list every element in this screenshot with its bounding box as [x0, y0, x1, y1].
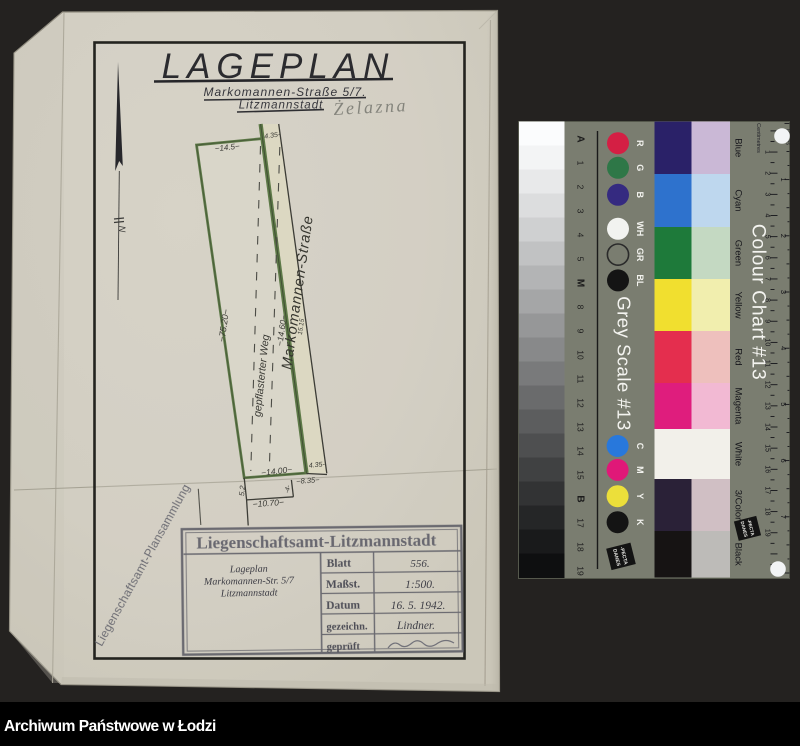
svg-text:Archiwum Państwowe w Łodzi: Archiwum Państwowe w Łodzi — [4, 718, 216, 735]
svg-text:Blue: Blue — [733, 138, 744, 157]
svg-text:4: 4 — [576, 233, 586, 238]
svg-text:K: K — [635, 519, 645, 526]
svg-text:Magenta: Magenta — [733, 388, 744, 426]
svg-text:3: 3 — [576, 209, 586, 214]
svg-text:Red: Red — [733, 348, 744, 365]
svg-text:2: 2 — [779, 234, 788, 238]
svg-text:556.: 556. — [410, 558, 429, 570]
svg-text:1:500.: 1:500. — [405, 579, 435, 591]
svg-text:18: 18 — [576, 542, 586, 552]
svg-text:15: 15 — [576, 470, 586, 480]
svg-text:GR: GR — [635, 248, 645, 262]
svg-text:8: 8 — [764, 298, 771, 302]
svg-text:1: 1 — [779, 178, 788, 182]
svg-text:14: 14 — [576, 446, 586, 456]
svg-text:9: 9 — [764, 319, 771, 323]
svg-text:18: 18 — [764, 508, 771, 516]
svg-text:3: 3 — [764, 192, 771, 196]
svg-text:Żelazna: Żelazna — [333, 95, 408, 119]
svg-text:8: 8 — [576, 305, 586, 310]
svg-text:Y: Y — [635, 493, 645, 499]
svg-text:Markomannen-Straße 5/7.: Markomannen-Straße 5/7. — [203, 85, 366, 99]
svg-text:Datum: Datum — [326, 600, 360, 612]
svg-text:10: 10 — [764, 339, 771, 347]
svg-text:17: 17 — [576, 518, 586, 528]
svg-text:11: 11 — [764, 360, 771, 367]
svg-text:G: G — [635, 164, 645, 171]
svg-text:6: 6 — [764, 256, 771, 260]
svg-text:geprüft: geprüft — [327, 642, 361, 653]
svg-text:−8.35−: −8.35− — [296, 475, 321, 486]
svg-text:16. 5. 1942.: 16. 5. 1942. — [391, 600, 446, 612]
svg-text:Grey Scale #13: Grey Scale #13 — [614, 296, 635, 431]
svg-text:7: 7 — [764, 277, 771, 281]
svg-text:2: 2 — [576, 185, 586, 190]
svg-text:Litzmannstadt: Litzmannstadt — [220, 588, 278, 600]
svg-text:11: 11 — [576, 375, 586, 384]
svg-text:Liegenschaftsamt-Litzmannstadt: Liegenschaftsamt-Litzmannstadt — [196, 531, 436, 553]
svg-text:BL: BL — [635, 274, 645, 286]
svg-text:R: R — [635, 140, 645, 147]
svg-text:3/Color: 3/Color — [733, 490, 744, 521]
svg-text:Blatt: Blatt — [327, 558, 352, 570]
svg-text:19: 19 — [576, 566, 586, 576]
svg-text:B: B — [635, 192, 645, 199]
svg-text:Centimetres: Centimetres — [755, 123, 761, 153]
svg-text:6: 6 — [779, 459, 788, 463]
svg-text:4: 4 — [779, 346, 788, 350]
svg-text:4.35-: 4.35- — [309, 461, 326, 469]
svg-text:Green: Green — [733, 240, 744, 266]
svg-text:12: 12 — [764, 381, 771, 389]
svg-text:M: M — [635, 466, 645, 474]
svg-text:Lageplan: Lageplan — [229, 564, 268, 576]
svg-text:N: N — [117, 226, 127, 233]
svg-text:White: White — [733, 442, 744, 466]
svg-text:15: 15 — [764, 444, 771, 452]
svg-text:gezeichn.: gezeichn. — [326, 621, 368, 633]
svg-text:1: 1 — [764, 150, 771, 154]
svg-text:A: A — [575, 135, 586, 142]
svg-text:WH: WH — [635, 221, 645, 236]
svg-text:Maßst.: Maßst. — [326, 579, 360, 591]
svg-text:Yellow: Yellow — [733, 291, 744, 318]
svg-text:5: 5 — [576, 257, 586, 262]
svg-text:16: 16 — [764, 465, 771, 473]
svg-text:Lindner.: Lindner. — [396, 620, 435, 632]
svg-text:Markomannen-Str. 5/7: Markomannen-Str. 5/7 — [203, 575, 295, 588]
svg-text:5: 5 — [764, 235, 771, 239]
svg-text:4: 4 — [764, 214, 771, 218]
svg-text:B: B — [575, 495, 586, 502]
svg-text:12: 12 — [576, 398, 586, 408]
svg-text:1: 1 — [576, 161, 586, 166]
svg-text:5: 5 — [779, 402, 788, 406]
svg-text:2: 2 — [764, 171, 771, 175]
svg-text:5.2: 5.2 — [237, 484, 247, 496]
svg-text:M: M — [575, 279, 586, 287]
svg-text:14: 14 — [764, 423, 771, 431]
svg-text:13: 13 — [764, 402, 771, 410]
svg-text:7: 7 — [779, 515, 788, 519]
svg-text:Cyan: Cyan — [733, 189, 744, 211]
svg-text:13: 13 — [576, 422, 586, 432]
svg-text:19: 19 — [764, 529, 771, 537]
svg-text:C: C — [635, 443, 645, 450]
svg-text:10: 10 — [576, 350, 586, 360]
svg-text:3: 3 — [779, 290, 788, 294]
svg-text:17: 17 — [764, 487, 771, 495]
svg-text:9: 9 — [576, 329, 586, 334]
svg-text:Black: Black — [733, 543, 744, 566]
